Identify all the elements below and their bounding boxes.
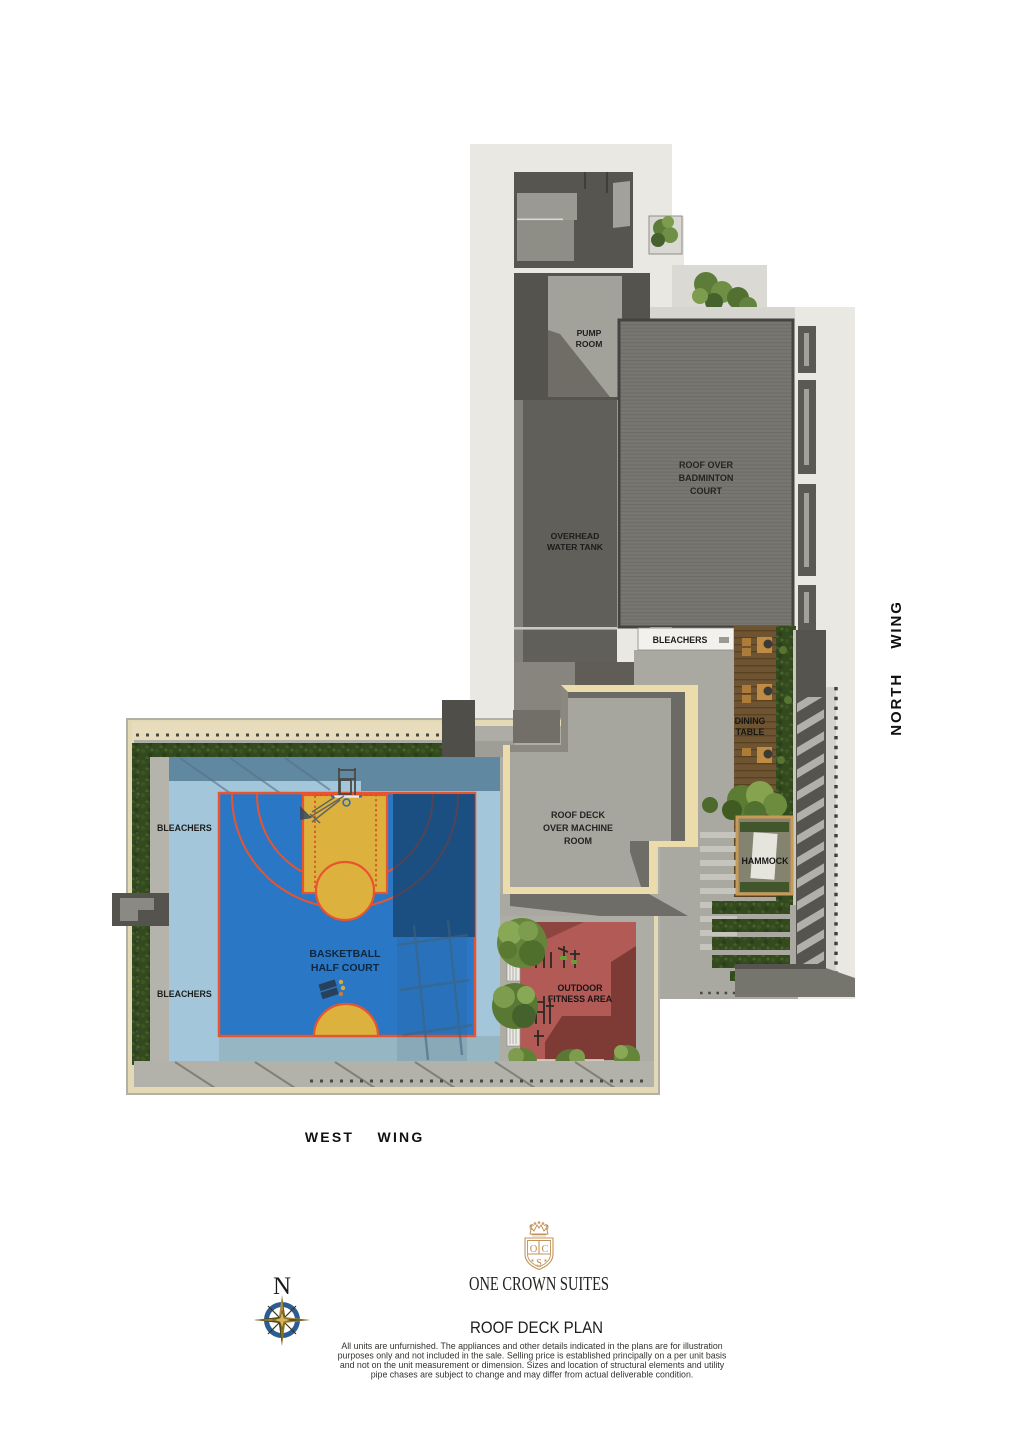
svg-text:OUTDOOR: OUTDOOR <box>558 983 604 993</box>
svg-text:HALF COURT: HALF COURT <box>311 962 380 974</box>
svg-text:C: C <box>541 1244 548 1255</box>
svg-text:WATER TANK: WATER TANK <box>547 542 604 552</box>
svg-text:BLEACHERS: BLEACHERS <box>157 823 212 833</box>
svg-text:NORTH WING: NORTH WING <box>888 600 905 736</box>
svg-text:WEST: WEST <box>305 1129 354 1145</box>
svg-text:purposes only and not included: purposes only and not included in the sa… <box>338 1351 727 1361</box>
svg-text:HAMMOCK: HAMMOCK <box>742 856 790 866</box>
svg-text:pipe chases are subject to cha: pipe chases are subject to change and ma… <box>371 1370 694 1380</box>
svg-text:S: S <box>536 1258 542 1269</box>
svg-text:ONE CROWN SUITES: ONE CROWN SUITES <box>469 1273 609 1295</box>
svg-text:OVERHEAD: OVERHEAD <box>551 531 600 541</box>
svg-text:and not on the unit measuremen: and not on the unit measurement or dimen… <box>340 1360 725 1370</box>
svg-text:All units are unfurnished. The: All units are unfurnished. The appliance… <box>341 1341 722 1351</box>
svg-text:ROOM: ROOM <box>564 836 592 846</box>
svg-text:PUMP: PUMP <box>577 328 602 338</box>
svg-text:ROOM: ROOM <box>576 339 603 349</box>
svg-text:BLEACHERS: BLEACHERS <box>653 635 708 645</box>
svg-text:OVER MACHINE: OVER MACHINE <box>543 823 613 833</box>
svg-text:ROOF OVER: ROOF OVER <box>679 460 734 470</box>
svg-text:BADMINTON: BADMINTON <box>679 473 734 483</box>
svg-text:O: O <box>530 1244 538 1255</box>
svg-text:BLEACHERS: BLEACHERS <box>157 989 212 999</box>
svg-text:ROOF DECK PLAN: ROOF DECK PLAN <box>470 1318 603 1337</box>
svg-text:TABLE: TABLE <box>736 727 765 737</box>
svg-text:ROOF DECK: ROOF DECK <box>551 810 606 820</box>
svg-text:WING: WING <box>378 1129 425 1145</box>
svg-text:COURT: COURT <box>690 486 722 496</box>
svg-text:BASKETBALL: BASKETBALL <box>309 948 381 960</box>
svg-text:DINING: DINING <box>735 716 766 726</box>
svg-text:FITNESS AREA: FITNESS AREA <box>548 994 613 1004</box>
